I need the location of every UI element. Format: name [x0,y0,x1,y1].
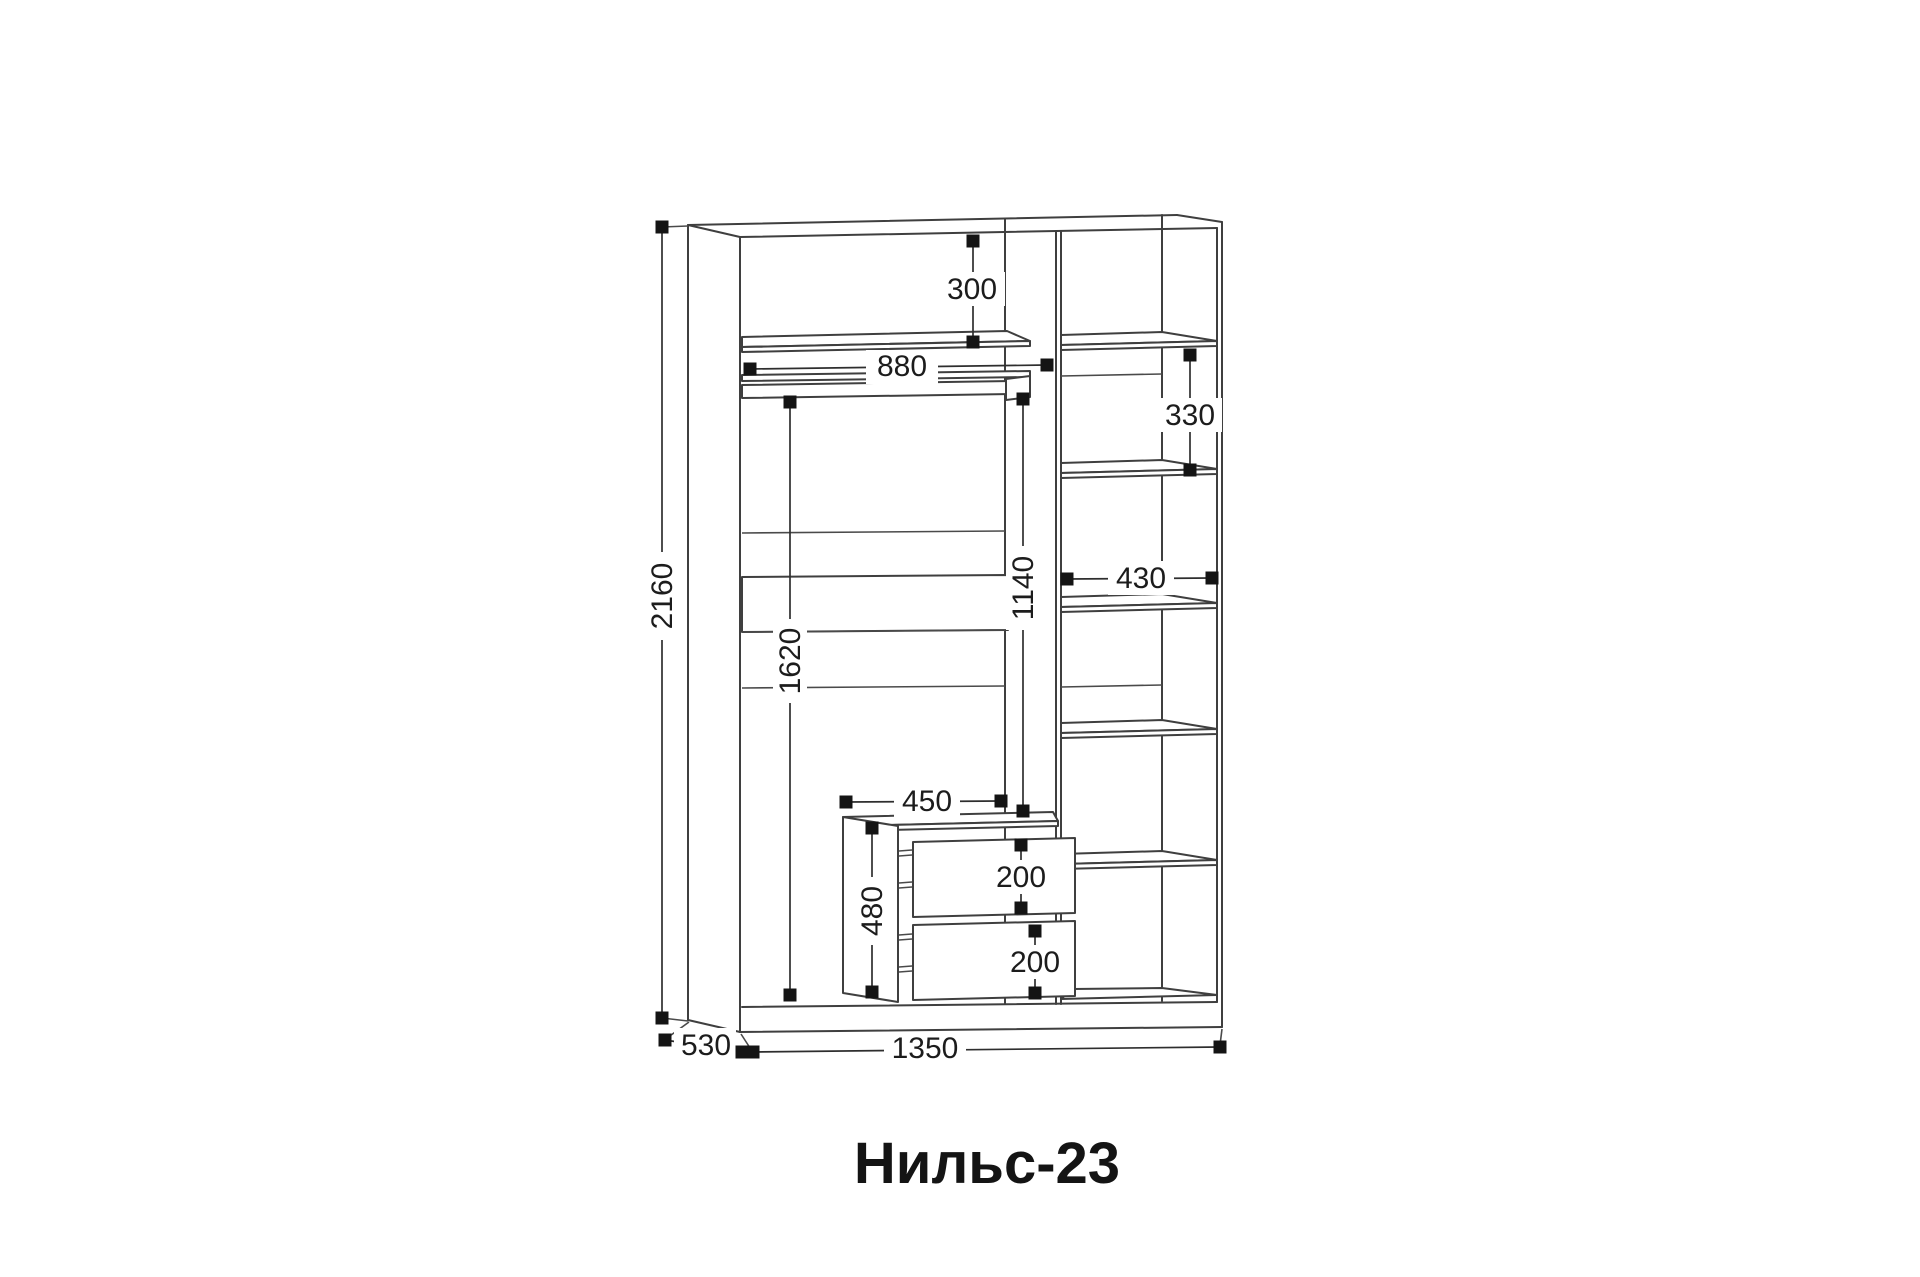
dim-right-column-width: 430 [1061,561,1219,595]
right-shelf-column [1061,332,1217,999]
dim-label-right-column-width: 430 [1116,562,1166,595]
dim-label-overall-width: 1350 [892,1032,959,1065]
drawer-slide [899,850,912,856]
drawer-slide [899,934,912,940]
back-seam-right-top [1061,374,1162,376]
dim-label-drawer-unit-height: 480 [856,886,889,936]
drawing-page: 2160 300 880 330 430 1140 [0,0,1920,1277]
dim-label-overall-height: 2160 [646,563,679,630]
rear-band-line [742,531,1005,533]
dim-label-drawer-top: 200 [996,861,1046,894]
dim-overall-width: 1350 [741,1029,1227,1066]
dim-right-shelf-spacing: 330 [1158,349,1222,477]
dim-hanging-zone: 1620 [773,396,807,1002]
floor-top-face [1061,988,1217,999]
dim-rod-to-drawer: 1140 [1006,393,1040,818]
dim-label-right-shelf-spacing: 330 [1165,399,1215,432]
drawer-slide [899,966,912,972]
dim-overall-height: 2160 [645,221,688,1025]
dim-label-left-section-width: 880 [877,350,927,383]
dim-label-depth: 530 [681,1029,731,1062]
dim-label-hanging-zone: 1620 [774,628,807,695]
drawer-slide [899,882,912,888]
dim-label-rod-to-drawer: 1140 [1007,556,1040,621]
wardrobe-technical-drawing: 2160 300 880 330 430 1140 [0,0,1920,1277]
dim-depth: 530 [659,1022,749,1062]
dim-label-drawer-bottom: 200 [1010,946,1060,979]
dim-label-top-section: 300 [947,273,997,306]
drawing-title: Нильс-23 [854,1131,1120,1196]
back-seam-right [1061,685,1162,687]
dim-label-drawer-unit-width: 450 [902,785,952,818]
